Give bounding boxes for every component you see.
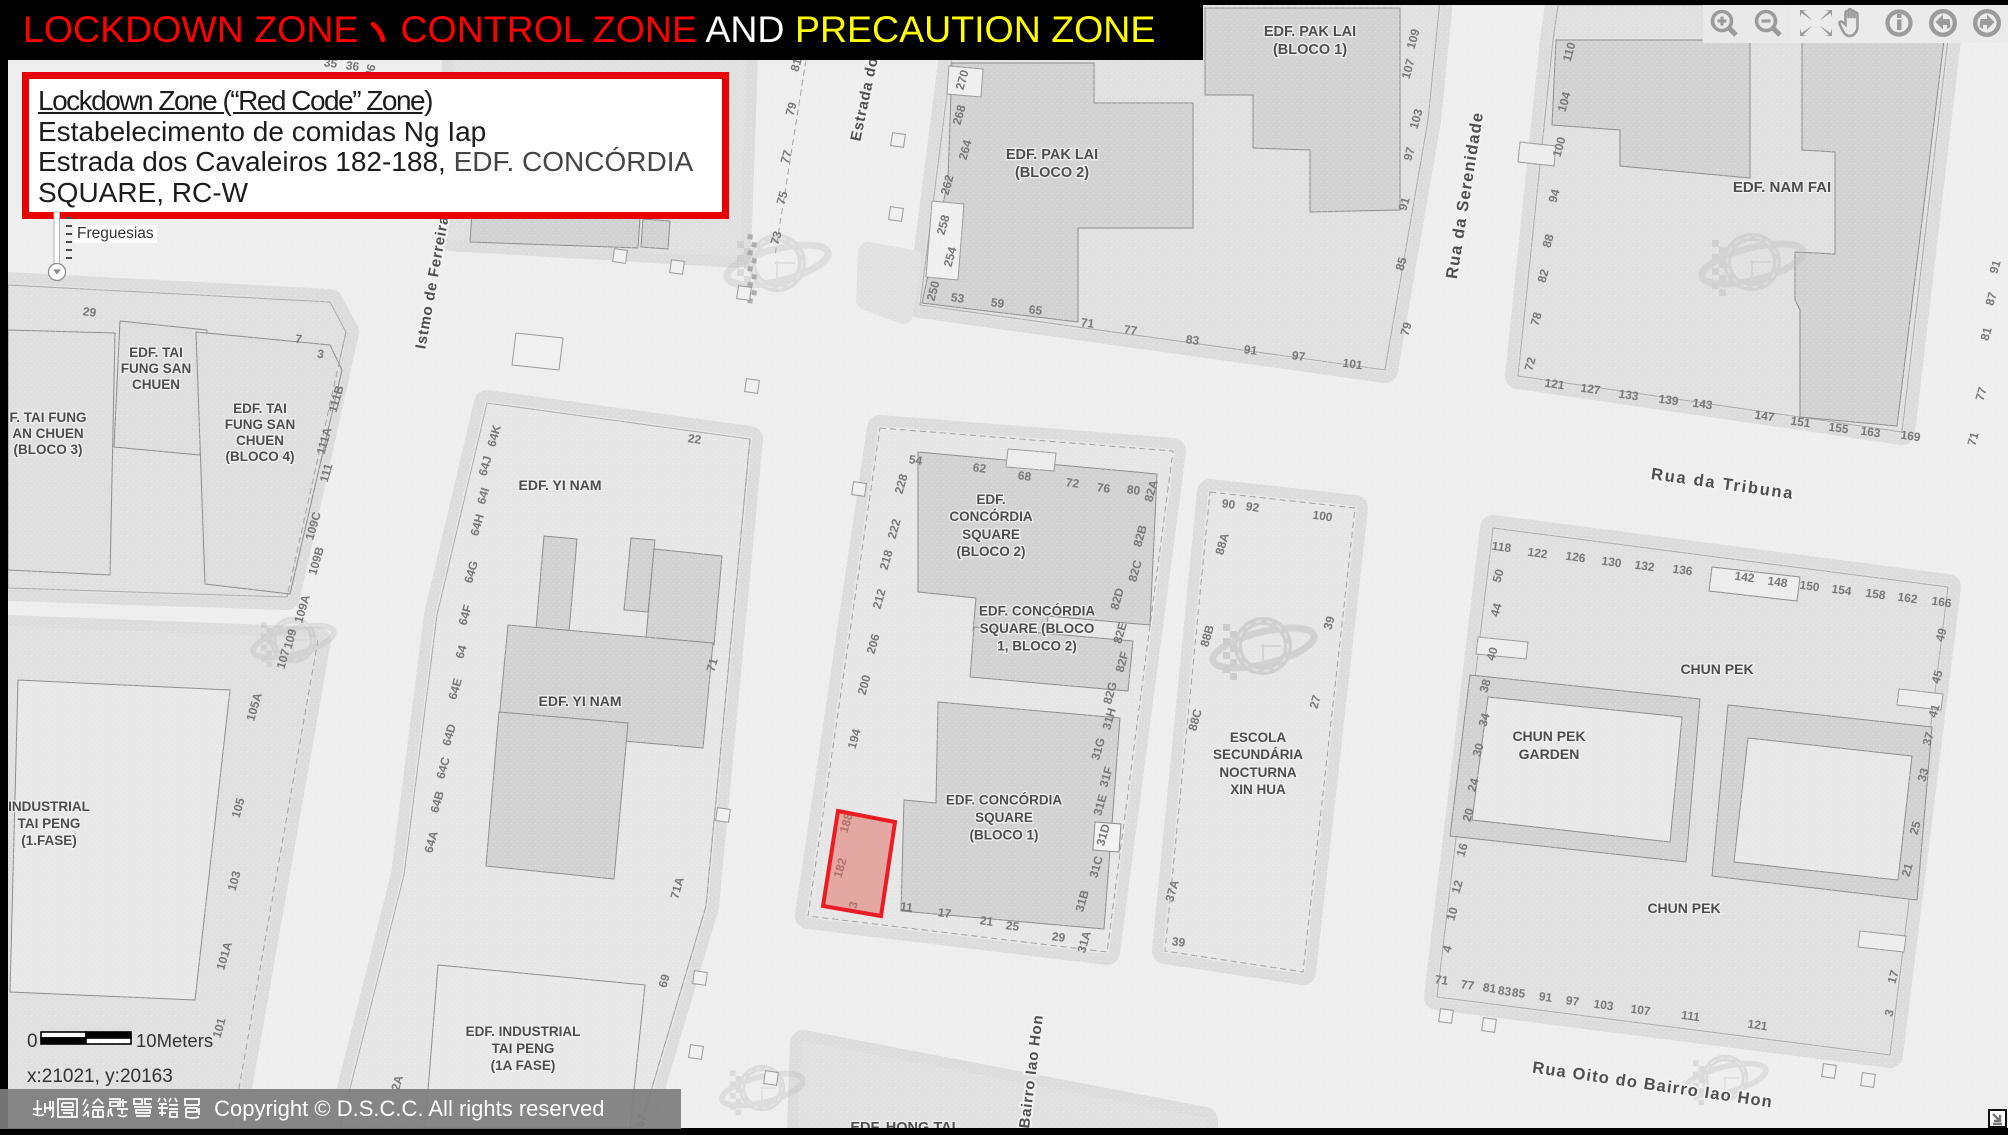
svg-text:133: 133 bbox=[1618, 387, 1640, 404]
svg-text:162: 162 bbox=[1897, 590, 1919, 607]
svg-text:107: 107 bbox=[1630, 1002, 1652, 1019]
svg-text:91: 91 bbox=[1538, 989, 1553, 1005]
svg-text:158: 158 bbox=[1865, 586, 1887, 603]
svg-text:71: 71 bbox=[1080, 315, 1095, 331]
svg-text:100: 100 bbox=[1312, 508, 1334, 525]
svg-text:0: 0 bbox=[27, 1031, 38, 1052]
svg-text:INDUSTRIAL: INDUSTRIAL bbox=[8, 799, 90, 814]
svg-text:29: 29 bbox=[1051, 929, 1066, 945]
svg-text:EDF. CONCÓRDIA: EDF. CONCÓRDIA bbox=[979, 604, 1096, 619]
svg-text:(1A FASE): (1A FASE) bbox=[491, 1058, 556, 1073]
svg-text:91: 91 bbox=[1243, 342, 1258, 358]
svg-text:(1.FASE): (1.FASE) bbox=[21, 833, 77, 848]
svg-text:85: 85 bbox=[1511, 985, 1526, 1001]
svg-text:29: 29 bbox=[82, 304, 97, 320]
svg-text:EDF. YI NAM: EDF. YI NAM bbox=[539, 693, 622, 709]
svg-text:130: 130 bbox=[1601, 554, 1623, 571]
svg-text:150: 150 bbox=[1799, 578, 1821, 595]
svg-text:ESCOLA: ESCOLA bbox=[1230, 730, 1287, 745]
svg-text:142: 142 bbox=[1734, 569, 1756, 586]
svg-text:(BLOCO 1): (BLOCO 1) bbox=[970, 828, 1039, 843]
svg-text:EDF. CONCÓRDIA: EDF. CONCÓRDIA bbox=[946, 793, 1063, 808]
svg-text:126: 126 bbox=[1565, 549, 1587, 566]
svg-text:EDF. PAK LAI: EDF. PAK LAI bbox=[1006, 147, 1098, 163]
svg-text:97: 97 bbox=[1291, 348, 1306, 364]
svg-text:101: 101 bbox=[1342, 356, 1364, 373]
svg-text:NOCTURNA: NOCTURNA bbox=[1219, 765, 1296, 780]
svg-text:118: 118 bbox=[1491, 539, 1512, 556]
svg-text:FUNG SAN: FUNG SAN bbox=[121, 361, 192, 376]
svg-text:21: 21 bbox=[979, 913, 994, 929]
svg-text:EDF. NAM FAI: EDF. NAM FAI bbox=[1733, 179, 1831, 196]
svg-text:68: 68 bbox=[1017, 468, 1032, 484]
svg-text:TAI PENG: TAI PENG bbox=[18, 816, 81, 831]
svg-text:(BLOCO 2): (BLOCO 2) bbox=[957, 544, 1026, 559]
svg-text:CHUEN: CHUEN bbox=[236, 433, 284, 448]
svg-text:GARDEN: GARDEN bbox=[1519, 746, 1580, 762]
svg-text:1, BLOCO 2): 1, BLOCO 2) bbox=[997, 639, 1077, 654]
svg-text:139: 139 bbox=[1658, 392, 1680, 409]
svg-text:CHUN PEK: CHUN PEK bbox=[1680, 661, 1753, 677]
svg-text:83: 83 bbox=[1185, 332, 1200, 348]
svg-text:(BLOCO 3): (BLOCO 3) bbox=[14, 442, 83, 457]
svg-text:EDF. INDUSTRIAL: EDF. INDUSTRIAL bbox=[466, 1024, 581, 1039]
svg-text:136: 136 bbox=[1672, 562, 1694, 579]
svg-text:83: 83 bbox=[1497, 983, 1512, 999]
svg-text:127: 127 bbox=[1580, 381, 1602, 398]
svg-text:77: 77 bbox=[1460, 977, 1475, 993]
svg-text:62: 62 bbox=[972, 460, 987, 476]
svg-text:71: 71 bbox=[1434, 972, 1449, 988]
svg-text:(BLOCO 1): (BLOCO 1) bbox=[1273, 42, 1347, 58]
svg-text:CHUN PEK: CHUN PEK bbox=[1512, 728, 1585, 744]
svg-text:CHUEN: CHUEN bbox=[132, 377, 180, 392]
svg-text:EDF. TAI: EDF. TAI bbox=[233, 401, 287, 416]
svg-text:77: 77 bbox=[1123, 322, 1138, 338]
svg-text:122: 122 bbox=[1527, 545, 1549, 562]
svg-text:80: 80 bbox=[1126, 482, 1141, 498]
svg-text:154: 154 bbox=[1831, 582, 1853, 599]
svg-text:25: 25 bbox=[1005, 918, 1020, 934]
svg-text:EDF. PAK LAI: EDF. PAK LAI bbox=[1264, 24, 1356, 40]
svg-text:132: 132 bbox=[1634, 558, 1656, 575]
svg-text:SQUARE: SQUARE bbox=[975, 810, 1033, 825]
svg-text:F. TAI FUNG: F. TAI FUNG bbox=[10, 410, 87, 425]
svg-text:151: 151 bbox=[1790, 414, 1812, 431]
svg-text:53: 53 bbox=[950, 290, 965, 306]
svg-text:39: 39 bbox=[1171, 934, 1186, 950]
svg-text:72: 72 bbox=[1065, 475, 1080, 491]
svg-text:TAI PENG: TAI PENG bbox=[492, 1041, 555, 1056]
svg-text:SECUNDÁRIA: SECUNDÁRIA bbox=[1213, 747, 1303, 762]
svg-text:FUNG SAN: FUNG SAN bbox=[225, 417, 296, 432]
svg-text:EDF. TAI: EDF. TAI bbox=[129, 345, 183, 360]
svg-text:121: 121 bbox=[1544, 376, 1566, 393]
svg-text:22: 22 bbox=[687, 431, 702, 447]
svg-text:147: 147 bbox=[1754, 408, 1776, 425]
svg-text:90: 90 bbox=[1221, 496, 1236, 512]
svg-text:143: 143 bbox=[1692, 396, 1714, 413]
svg-text:54: 54 bbox=[908, 452, 923, 468]
svg-text:CHUN PEK: CHUN PEK bbox=[1647, 900, 1720, 916]
svg-text:148: 148 bbox=[1767, 574, 1789, 591]
svg-text:17: 17 bbox=[937, 905, 952, 921]
svg-text:AN CHUEN: AN CHUEN bbox=[12, 426, 83, 441]
svg-text:CONCÓRDIA: CONCÓRDIA bbox=[949, 509, 1032, 524]
svg-text:103: 103 bbox=[1593, 997, 1615, 1014]
svg-text:121: 121 bbox=[1747, 1017, 1769, 1034]
svg-text:59: 59 bbox=[990, 295, 1005, 311]
svg-text:SQUARE: SQUARE bbox=[962, 527, 1020, 542]
svg-text:97: 97 bbox=[1565, 993, 1580, 1009]
svg-text:111: 111 bbox=[1680, 1008, 1701, 1025]
svg-text:EDF. YI NAM: EDF. YI NAM bbox=[519, 477, 602, 493]
svg-text:92: 92 bbox=[1245, 499, 1260, 515]
svg-text:11: 11 bbox=[899, 899, 914, 915]
svg-text:(BLOCO 2): (BLOCO 2) bbox=[1015, 165, 1089, 181]
svg-text:76: 76 bbox=[1096, 480, 1111, 496]
svg-text:SQUARE (BLOCO: SQUARE (BLOCO bbox=[980, 621, 1095, 636]
svg-text:155: 155 bbox=[1828, 420, 1850, 437]
svg-text:169: 169 bbox=[1900, 428, 1922, 445]
svg-text:81: 81 bbox=[1482, 980, 1497, 996]
svg-text:166: 166 bbox=[1931, 594, 1953, 611]
svg-text:(BLOCO 4): (BLOCO 4) bbox=[226, 449, 295, 464]
svg-text:163: 163 bbox=[1860, 424, 1882, 441]
svg-text:XIN HUA: XIN HUA bbox=[1230, 782, 1286, 797]
svg-text:EDF.: EDF. bbox=[976, 492, 1005, 507]
svg-text:65: 65 bbox=[1028, 302, 1043, 318]
svg-text:10Meters: 10Meters bbox=[136, 1030, 213, 1051]
